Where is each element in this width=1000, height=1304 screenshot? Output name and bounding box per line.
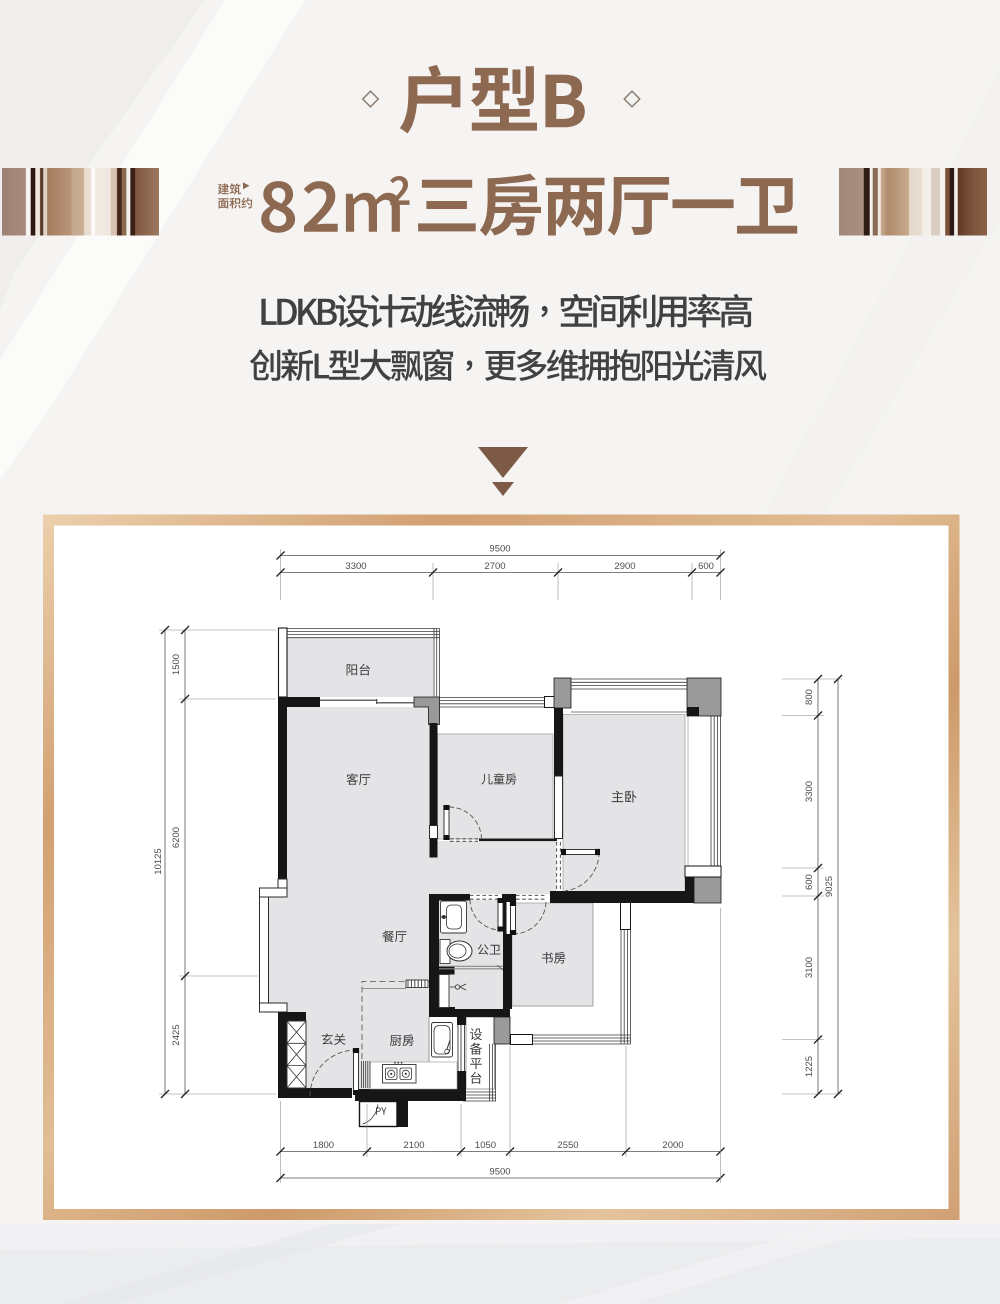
- svg-text:3100: 3100: [804, 957, 815, 978]
- svg-text:2900: 2900: [614, 561, 635, 572]
- svg-text:800: 800: [804, 689, 815, 705]
- svg-text:2425: 2425: [171, 1024, 182, 1045]
- svg-text:2550: 2550: [557, 1140, 578, 1151]
- svg-text:600: 600: [698, 561, 714, 572]
- svg-text:3300: 3300: [345, 561, 366, 572]
- svg-text:1800: 1800: [313, 1140, 334, 1151]
- svg-text:9500: 9500: [489, 544, 510, 555]
- svg-text:10125: 10125: [153, 848, 164, 874]
- svg-text:9025: 9025: [824, 876, 835, 897]
- svg-text:1225: 1225: [804, 1056, 815, 1077]
- svg-text:600: 600: [804, 874, 815, 890]
- svg-text:2100: 2100: [403, 1140, 424, 1151]
- svg-text:2700: 2700: [484, 561, 505, 572]
- svg-text:1050: 1050: [475, 1140, 496, 1151]
- svg-text:9500: 9500: [489, 1167, 510, 1178]
- svg-text:6200: 6200: [171, 827, 182, 848]
- svg-text:3300: 3300: [804, 781, 815, 802]
- svg-text:2000: 2000: [662, 1140, 683, 1151]
- svg-text:1500: 1500: [171, 654, 182, 675]
